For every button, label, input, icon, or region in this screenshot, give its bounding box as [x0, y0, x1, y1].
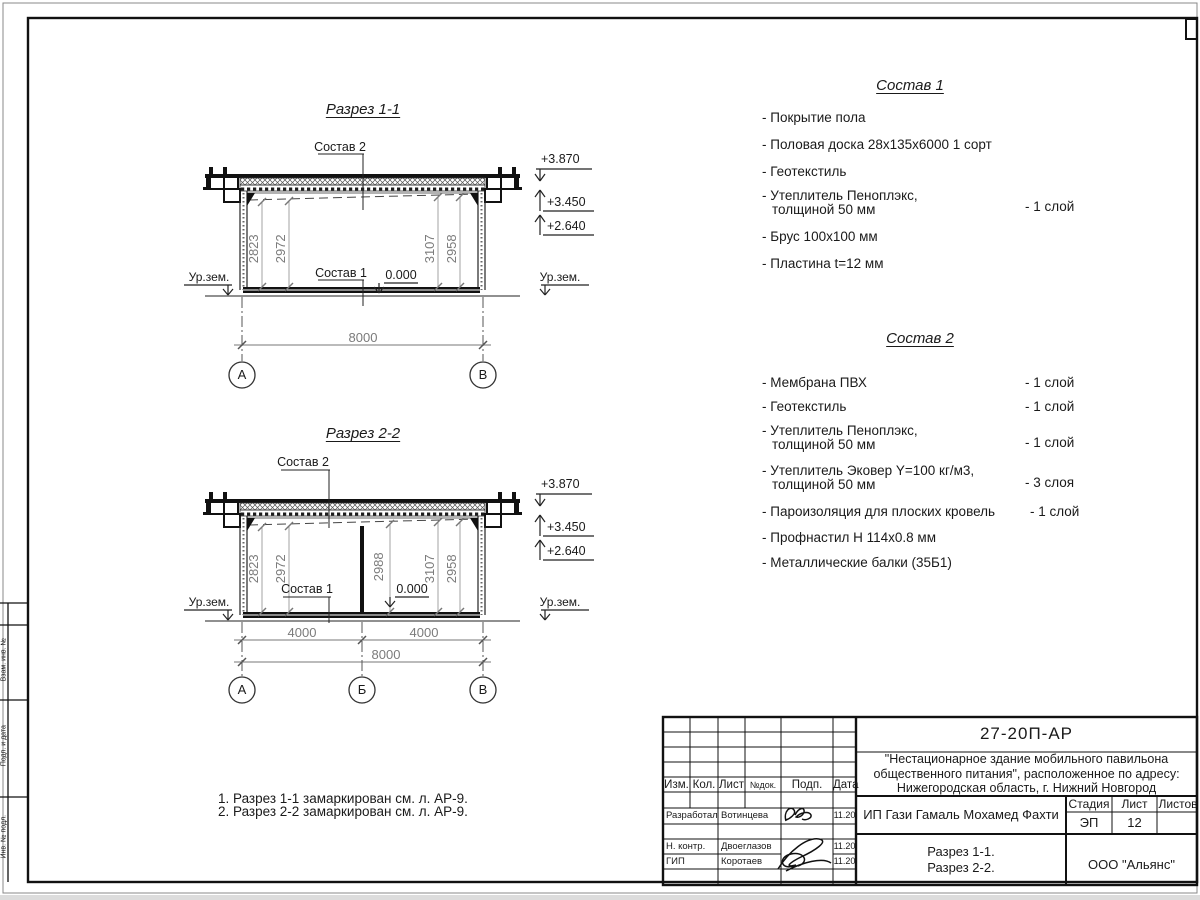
- list-item: - Геотекстиль: [762, 400, 846, 414]
- sostav2-title: Состав 2: [865, 331, 975, 347]
- col-header-izm: Изм.: [663, 779, 690, 791]
- section1-dim-2958: 2958: [445, 227, 459, 271]
- section2-dim-2958: 2958: [445, 547, 459, 591]
- sheet-value: 12: [1112, 816, 1157, 830]
- signer-date-1: 11.20: [833, 811, 856, 820]
- project-description: "Нестационарное здание мобильного павиль…: [858, 752, 1195, 796]
- section1-title: Разрез 1-1: [303, 102, 423, 118]
- col-header-kol: Кол.: [690, 779, 718, 791]
- doc-number: 27-20П-АР: [856, 725, 1197, 743]
- list-item-qty: - 1 слой: [1025, 376, 1074, 390]
- signatures: [778, 808, 831, 871]
- list-item: - Мембрана ПВХ: [762, 376, 867, 390]
- section2-title: Разрез 2-2: [303, 426, 423, 442]
- section1-zero-mark: 0.000: [371, 269, 431, 282]
- section1-dim-3107: 3107: [423, 227, 437, 271]
- list-item-line2: толщиной 50 мм: [772, 438, 875, 452]
- signer-name-3: Коротаев: [721, 857, 762, 867]
- list-item-qty: - 1 слой: [1025, 400, 1074, 414]
- signer-role-3: ГИП: [666, 857, 685, 867]
- sheet-label: Лист: [1112, 798, 1157, 811]
- section2-dim-4000-left: 4000: [272, 626, 332, 640]
- list-item-line2: толщиной 50 мм: [772, 203, 875, 217]
- col-header-list: Лист: [718, 779, 745, 791]
- signer-role-1: Разработал: [666, 811, 718, 821]
- sheet-title-line-2: Разрез 2-2.: [856, 860, 1066, 876]
- zero-level-mark: [385, 597, 429, 607]
- signature-kontrol-gip: [778, 839, 831, 871]
- list-item: - Половая доска 28х135х6000 1 сорт: [762, 138, 992, 152]
- section1-axis-a: А: [228, 368, 256, 382]
- section1-sostav2-label: Состав 2: [308, 141, 372, 154]
- section1-ground-label-right: Ур.зем.: [530, 271, 590, 284]
- sheet-title: Разрез 1-1. Разрез 2-2.: [856, 844, 1066, 875]
- list-item-qty: - 1 слой: [1025, 200, 1074, 214]
- section2-ground-label-right: Ур.зем.: [530, 596, 590, 609]
- col-header-podp: Подп.: [781, 779, 833, 791]
- section2-elevation-3: +2.640: [547, 545, 586, 558]
- col-header-data: Дата: [833, 779, 856, 791]
- project-line-2: общественного питания", расположенное по…: [858, 767, 1195, 782]
- section2-dim-2823: 2823: [247, 547, 261, 591]
- list-item-qty: - 1 слой: [1025, 436, 1074, 450]
- section1-elevation-3: +2.640: [547, 220, 586, 233]
- sostav1-title: Состав 1: [855, 78, 965, 94]
- list-item: - Геотекстиль: [762, 165, 846, 179]
- signer-name-1: Вотинцева: [721, 811, 768, 821]
- signer-name-2: Двоеглазов: [721, 842, 772, 852]
- section2-axis-v: В: [469, 683, 497, 697]
- section1-dim-2823: 2823: [247, 227, 261, 271]
- company-name: ООО "Альянс": [1066, 858, 1197, 872]
- section1-axis-v: В: [469, 368, 497, 382]
- side-label-podpis: Подп. и дата: [0, 711, 7, 781]
- note-line-2: 2. Разрез 2-2 замаркирован см. л. АР-9.: [218, 805, 468, 819]
- list-item: - Брус 100х100 мм: [762, 230, 878, 244]
- stage-value: ЭП: [1066, 816, 1112, 830]
- signature-votintseva: [785, 808, 811, 821]
- section2-elevation-2: +3.450: [547, 521, 586, 534]
- section1-elevation-2: +3.450: [547, 196, 586, 209]
- section1-sostav1-label: Состав 1: [309, 267, 373, 280]
- list-item-qty: - 1 слой: [1030, 505, 1079, 519]
- sheet-title-line-1: Разрез 1-1.: [856, 844, 1066, 860]
- list-item: - Профнастил Н 114х0.8 мм: [762, 531, 936, 545]
- section2-axis-b: Б: [348, 683, 376, 697]
- project-line-1: "Нестационарное здание мобильного павиль…: [858, 752, 1195, 767]
- project-line-3: Нижегородская область, г. Нижний Новгоро…: [858, 781, 1195, 796]
- list-item-qty: - 3 слоя: [1025, 476, 1074, 490]
- list-item: - Покрытие пола: [762, 111, 865, 125]
- middle-wall: [360, 526, 364, 612]
- section2-dim-4000-right: 4000: [394, 626, 454, 640]
- list-item: - Металлические балки (35Б1): [762, 556, 952, 570]
- section2-sostav2-label: Состав 2: [271, 456, 335, 469]
- list-item-line2: толщиной 50 мм: [772, 478, 875, 492]
- section1-dim-8000: 8000: [333, 331, 393, 345]
- section2-elevation-1: +3.870: [541, 478, 580, 491]
- drawing-sheet: Разрез 1-1 Состав 2 +3.870 +3.450 +2.640…: [0, 0, 1200, 900]
- stage-label: Стадия: [1066, 798, 1112, 811]
- list-item: - Пластина t=12 мм: [762, 257, 884, 271]
- signer-date-3: 11.20: [833, 857, 856, 866]
- section2-zero-mark: 0.000: [382, 583, 442, 596]
- sheets-label: Листов: [1157, 798, 1199, 811]
- section2-ground-label-left: Ур.зем.: [179, 596, 239, 609]
- section1-elevation-1: +3.870: [541, 153, 580, 166]
- side-label-vzam: Взам. инв. №: [0, 625, 7, 695]
- section2-sostav1-label: Состав 1: [277, 583, 337, 596]
- section2-axis-a: А: [228, 683, 256, 697]
- signer-role-2: Н. контр.: [666, 842, 705, 852]
- client-name: ИП Гази Гамаль Мохамед Фахти: [856, 808, 1066, 822]
- section1-ground-label-left: Ур.зем.: [179, 271, 239, 284]
- section1-dim-2972: 2972: [274, 227, 288, 271]
- side-label-inv: Инв. № подл.: [0, 802, 7, 872]
- list-item: - Пароизоляция для плоских кровель: [762, 505, 995, 519]
- section2-dim-8000: 8000: [356, 648, 416, 662]
- signer-date-2: 11.20: [833, 842, 856, 851]
- col-header-ndok: №док.: [745, 781, 781, 790]
